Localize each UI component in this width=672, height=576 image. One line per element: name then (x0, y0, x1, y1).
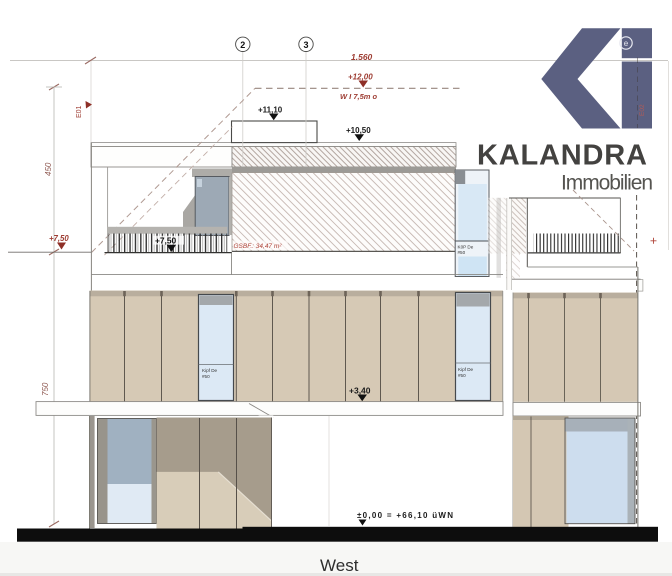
svg-text:+10,50: +10,50 (346, 126, 371, 135)
svg-text:E02: E02 (639, 104, 646, 116)
svg-text:e: e (624, 39, 629, 48)
svg-text:+3,40: +3,40 (349, 386, 371, 396)
svg-text:E01: E01 (76, 105, 83, 118)
svg-text:±0,00 = +66,10 üWN: ±0,00 = +66,10 üWN (357, 511, 453, 520)
svg-text:450: 450 (44, 162, 53, 176)
svg-text:1.560: 1.560 (351, 52, 373, 62)
svg-text:+7,50: +7,50 (49, 234, 69, 243)
svg-text:#50: #50 (458, 373, 466, 378)
svg-text:GSBF.: 34,47 m²: GSBF.: 34,47 m² (234, 243, 283, 250)
svg-text:K0P De: K0P De (458, 245, 474, 250)
svg-text:#50: #50 (458, 250, 466, 255)
svg-text:W I 7,5m o: W I 7,5m o (340, 92, 378, 101)
svg-text:KALANDRA: KALANDRA (477, 140, 647, 172)
svg-text:#50: #50 (202, 374, 210, 379)
svg-text:Immobilien: Immobilien (561, 172, 653, 195)
svg-text:Kipf De: Kipf De (458, 367, 474, 372)
svg-text:+12,00: +12,00 (348, 73, 373, 82)
svg-text:750: 750 (41, 382, 50, 396)
svg-text:2: 2 (240, 40, 245, 50)
svg-text:+11,10: +11,10 (258, 106, 283, 115)
svg-text:West: West (320, 556, 359, 575)
svg-text:3: 3 (303, 40, 308, 50)
svg-text:Kipf De: Kipf De (202, 368, 218, 373)
svg-text:+7,50: +7,50 (155, 236, 177, 246)
